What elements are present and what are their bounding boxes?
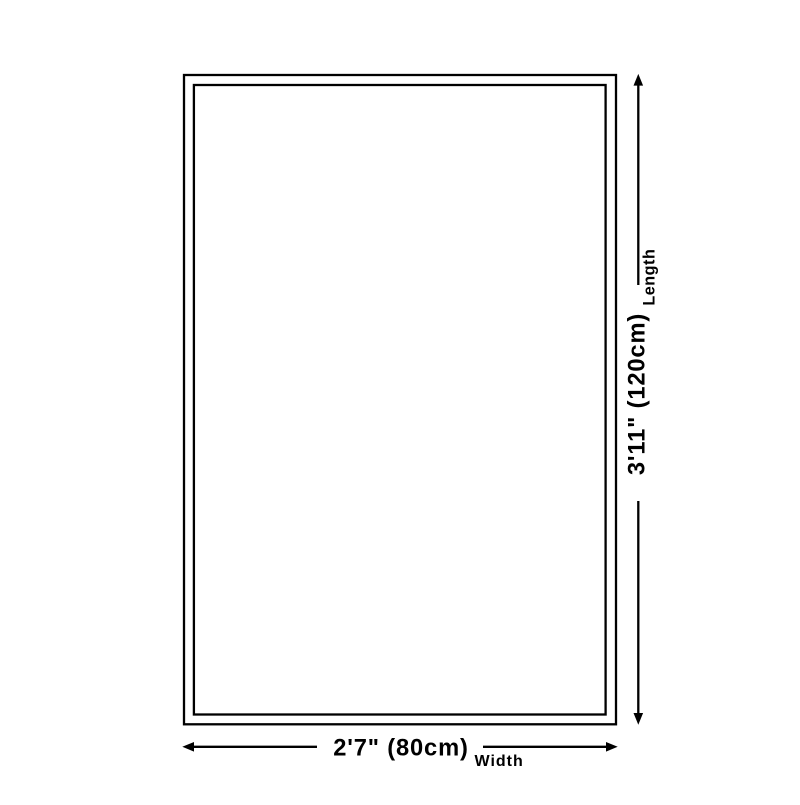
svg-text:2'7" (80cm): 2'7" (80cm) [333, 735, 469, 761]
svg-text:3'11" (120cm): 3'11" (120cm) [625, 313, 651, 475]
svg-text:Width: Width [475, 753, 524, 770]
svg-text:Length: Length [640, 249, 658, 306]
